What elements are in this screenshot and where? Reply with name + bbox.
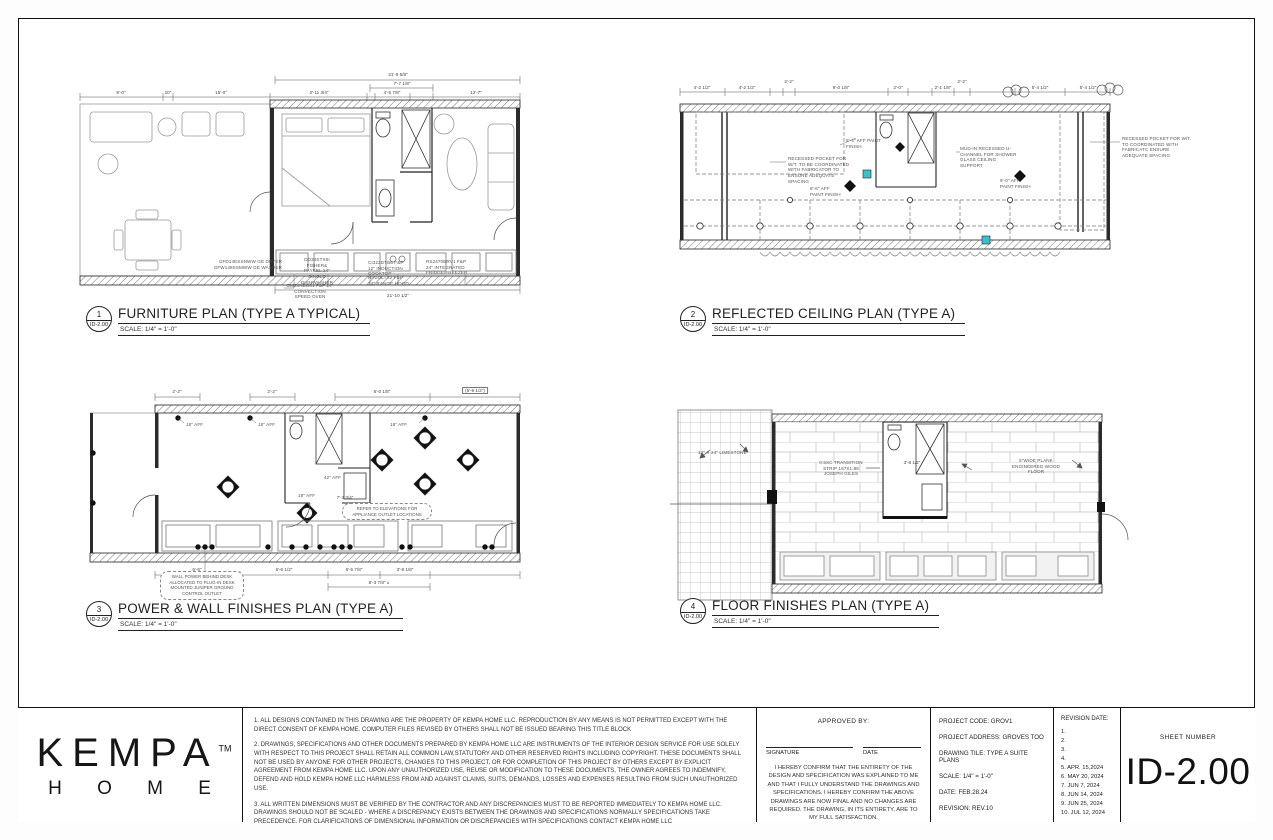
dim-label: 6'-5 7/8" — [346, 567, 363, 572]
callout-number: 4 — [681, 602, 705, 613]
sheet-number-value: ID-2.00 — [1126, 751, 1251, 793]
dim-label: 15'-0" — [215, 90, 227, 95]
dim-label: 2'-11 3/4" — [309, 90, 328, 95]
dim-label: (5'-9 1/2") — [462, 387, 488, 394]
note-2: 2. DRAWINGS, SPECIFICATIONS AND OTHER DO… — [254, 741, 745, 793]
logo-cell: KEMPATM H O M E — [18, 708, 243, 822]
callout-sheet-ref: ID-2.00 — [684, 321, 702, 328]
dim-label: 10" — [165, 90, 172, 95]
revision-item: 10. JUL 12, 2024 — [1061, 809, 1113, 818]
signature-line[interactable]: SIGNATURE — [766, 747, 853, 756]
rcp-title: 2 ID-2.00 REFLECTED CEILING PLAN (TYPE A… — [680, 306, 965, 336]
appliance-note-washer: GFD14ESSNWW GE DRYERGFW148SSMWW GE WASHE… — [190, 259, 282, 270]
title-block: KEMPATM H O M E 1. ALL DESIGNS CONTAINED… — [18, 707, 1255, 822]
aff-label: 18" AFF — [186, 422, 203, 428]
revision-item: 1. — [1061, 728, 1113, 737]
dim-label: 3'-8 1/2" — [904, 460, 921, 465]
revision-item: 8. JUN 14, 2024 — [1061, 791, 1113, 800]
floor-plan-drawing — [670, 402, 1130, 612]
plan-title-text: FLOOR FINISHES PLAN (TYPE A) — [712, 598, 939, 616]
project-address: PROJECT ADDRESS: GROVES TOO — [939, 734, 1045, 741]
rcp-callout: 2 ID-2.00 — [680, 306, 706, 332]
revision-heading: REVISION DATE: — [1061, 716, 1113, 722]
dim-label: 12'-7" — [470, 90, 482, 95]
revision-dates-cell: REVISION DATE: 1. 2. 3. 4. 5. APR. 15,20… — [1054, 708, 1121, 822]
sheet-number-cell: SHEET NUMBER ID-2.00 — [1121, 708, 1255, 822]
power-plan-callout: 3 ID-2.00 — [86, 601, 112, 627]
logo-sub: H O M E — [34, 778, 226, 800]
dim-label: 8'-3 7/8" ± — [369, 580, 390, 585]
power-plan-title: 3 ID-2.00 POWER & WALL FINISHES PLAN (TY… — [86, 601, 403, 631]
floor-note-wood: 5"WIDE PLANK ENGINEERED WOOD FLOOR — [1006, 458, 1066, 475]
dim-label: 5'-4 1/2" — [1032, 85, 1049, 90]
kempa-logo: KEMPATM — [28, 731, 231, 776]
drawing-sheet: 21'-9 5/8" 7'-7 1/8" 9'-0" 10" 15'-0" 2'… — [0, 0, 1273, 840]
dim-label: 2'-2" — [172, 389, 181, 394]
rcp-note-mudin: MUD-IN RECESSED U-CHANNEL FOR SHOWER GLA… — [960, 146, 1018, 169]
approval-cell: APPROVED BY: SIGNATURE DATE I HEREBY CON… — [757, 708, 931, 822]
plan-title-text: REFLECTED CEILING PLAN (TYPE A) — [712, 306, 965, 324]
callout-number: 3 — [87, 605, 111, 616]
revision-item: 7. JUN 7, 2024 — [1061, 782, 1113, 791]
reflected-ceiling-plan: 4'-2 1/2" 4'-2 1/2" 2'-2" 9'-0 1/8" 2'-0… — [670, 82, 1200, 307]
revision-item: 3. — [1061, 746, 1113, 755]
note-1: 1. ALL DESIGNS CONTAINED IN THIS DRAWING… — [254, 717, 745, 734]
callout-sheet-ref: ID-2.00 — [684, 613, 702, 620]
callout-sheet-ref: ID-2.00 — [90, 616, 108, 623]
project-scale: SCALE: 1/4" = 1'-0" — [939, 773, 1045, 780]
dim-label: 2'-2" — [784, 79, 793, 84]
drawing-title: DRAWING TILE: TYPE A SUITE PLANS — [939, 750, 1045, 764]
furniture-plan-title: 1 ID-2.00 FURNITURE PLAN (TYPE A TYPICAL… — [86, 306, 370, 336]
dim-label: 6'-0 1/8" — [374, 389, 391, 394]
rcp-note-aff90-left: 8'-6" AFF PAINT FINISH — [810, 186, 844, 197]
floor-plan-title: 4 ID-2.00 FLOOR FINISHES PLAN (TYPE A) S… — [680, 598, 939, 628]
revision-item: 4. — [1061, 755, 1113, 764]
floor-plan-callout: 4 ID-2.00 — [680, 598, 706, 624]
dim-label: 7'-3 3/4" — [337, 495, 354, 500]
aff-label: 18" AFF — [258, 422, 275, 428]
rcp-note-aff84: 8'-4" AFF PAINT FINISH — [846, 138, 882, 149]
plan-title-text: FURNITURE PLAN (TYPE A TYPICAL) — [118, 306, 370, 324]
appliance-note-oven: OM24NDB81 F&P 24" CONVECTION SPEED OVEN — [286, 283, 334, 300]
power-note-appliance-outlets: REFER TO ELEVATIONS FOR APPLIANCE OUTLET… — [342, 503, 432, 520]
revision-item: 5. APR. 15,2024 — [1061, 764, 1113, 773]
revision-item: 2. — [1061, 737, 1113, 746]
power-note-wall-power: WALL POWER BEHIND DESK ALLOCATED TO PLUG… — [160, 571, 244, 600]
date-line[interactable]: DATE — [863, 747, 921, 756]
dim-label: 4'-2 1/2" — [694, 85, 711, 90]
plan-scale-text: SCALE: 1/4" = 1'-0" — [118, 619, 403, 631]
power-plan: 2'-2" 2'-2" 6'-0 1/8" (5'-9 1/2") 18" AF… — [80, 383, 530, 613]
revision-item: 9. JUN 25, 2024 — [1061, 800, 1113, 809]
furniture-plan-callout: 1 ID-2.00 — [86, 306, 112, 332]
aff-label: 18" AFF — [390, 422, 407, 428]
dim-label: 5'-4 1/2" — [1080, 85, 1097, 90]
dim-label: 2'-0" — [893, 85, 902, 90]
aff-label: 42" AFF — [324, 475, 341, 481]
dim-label: 9'-0" — [116, 90, 125, 95]
rcp-drawing — [670, 82, 1200, 307]
logo-tm: TM — [219, 743, 232, 753]
dim-label: 4'-2 1/2" — [739, 85, 756, 90]
dim-label: 6'-6" — [192, 567, 201, 572]
floor-note-transition: 0.5SC TRANSITION STRIP 167X1.88 JOSEPH G… — [818, 460, 864, 477]
dim-label: 2'-2" — [957, 79, 966, 84]
rcp-note-aff90-right: 9'-0" AFF PAINT FINISH — [1000, 178, 1034, 189]
note-3: 3. ALL WRITTEN DIMENSIONS MUST BE VERIFI… — [254, 801, 745, 827]
floor-finishes-plan: 12" X 24" LIMESTONE 0.5SC TRANSITION STR… — [670, 402, 1130, 612]
dim-label: 2'-2" — [267, 389, 276, 394]
revision-item: 6. MAY 20, 2024 — [1061, 773, 1113, 782]
dim-label: 4'-5 7/8" — [384, 90, 401, 95]
approved-by-heading: APPROVED BY: — [766, 718, 921, 725]
general-notes: 1. ALL DESIGNS CONTAINED IN THIS DRAWING… — [243, 708, 757, 822]
aff-label: 18" AFF — [298, 493, 315, 499]
project-info-cell: PROJECT CODE: GROV1 PROJECT ADDRESS: GRO… — [931, 708, 1054, 822]
dim-label: 7'-7 1/8" — [394, 81, 411, 86]
rcp-note-pocket-right: RECESSED POCKET FOR W/T. TO COORDINATED … — [1122, 136, 1192, 159]
sheet-number-label: SHEET NUMBER — [1160, 734, 1216, 741]
project-date: DATE: FEB.28.24 — [939, 789, 1045, 796]
appliance-note-fridge: RS2470BRV1 F&P 24" INTEGRATED FRIDGE/FRE… — [426, 259, 468, 276]
appliance-note-hood: HP24ILTX2 F&P 24" RANGE HOOD — [368, 275, 410, 286]
callout-number: 1 — [87, 310, 111, 321]
logo-brand: KEMPA — [36, 731, 218, 775]
plan-scale-text: SCALE: 1/4" = 1'-0" — [118, 324, 370, 336]
plan-scale-text: SCALE: 1/4" = 1'-0" — [712, 616, 939, 628]
plan-title-text: POWER & WALL FINISHES PLAN (TYPE A) — [118, 601, 403, 619]
callout-sheet-ref: ID-2.00 — [90, 321, 108, 328]
project-code: PROJECT CODE: GROV1 — [939, 718, 1045, 725]
rcp-note-pocket-left: RECESSED POCKET FOR W/T. TO BE COORDINAT… — [788, 156, 852, 185]
dim-label: 6'-6 1/2" — [276, 567, 293, 572]
dim-label: 2'-1 1/8" — [935, 85, 952, 90]
plan-scale-text: SCALE: 1/4" = 1'-0" — [712, 324, 965, 336]
dim-label: 3'-8 1/8" — [397, 567, 414, 572]
project-revision: REVISION: REV.10 — [939, 805, 1045, 812]
dim-label: 9'-0 1/8" — [833, 85, 850, 90]
floor-note-limestone: 12" X 24" LIMESTONE — [698, 450, 747, 456]
dim-label: 21'-10 1/2" — [387, 293, 409, 298]
approval-statement: I HEREBY CONFIRM THAT THE ENTIRETY OF TH… — [766, 764, 921, 823]
appliance-note-dishwasher: DD24STX6I FISHER& PAYKEL 24" SINGLE DISH… — [300, 257, 334, 286]
callout-number: 2 — [681, 310, 705, 321]
furniture-plan: 21'-9 5/8" 7'-7 1/8" 9'-0" 10" 15'-0" 2'… — [70, 72, 530, 307]
dim-label: 21'-9 5/8" — [388, 72, 407, 77]
